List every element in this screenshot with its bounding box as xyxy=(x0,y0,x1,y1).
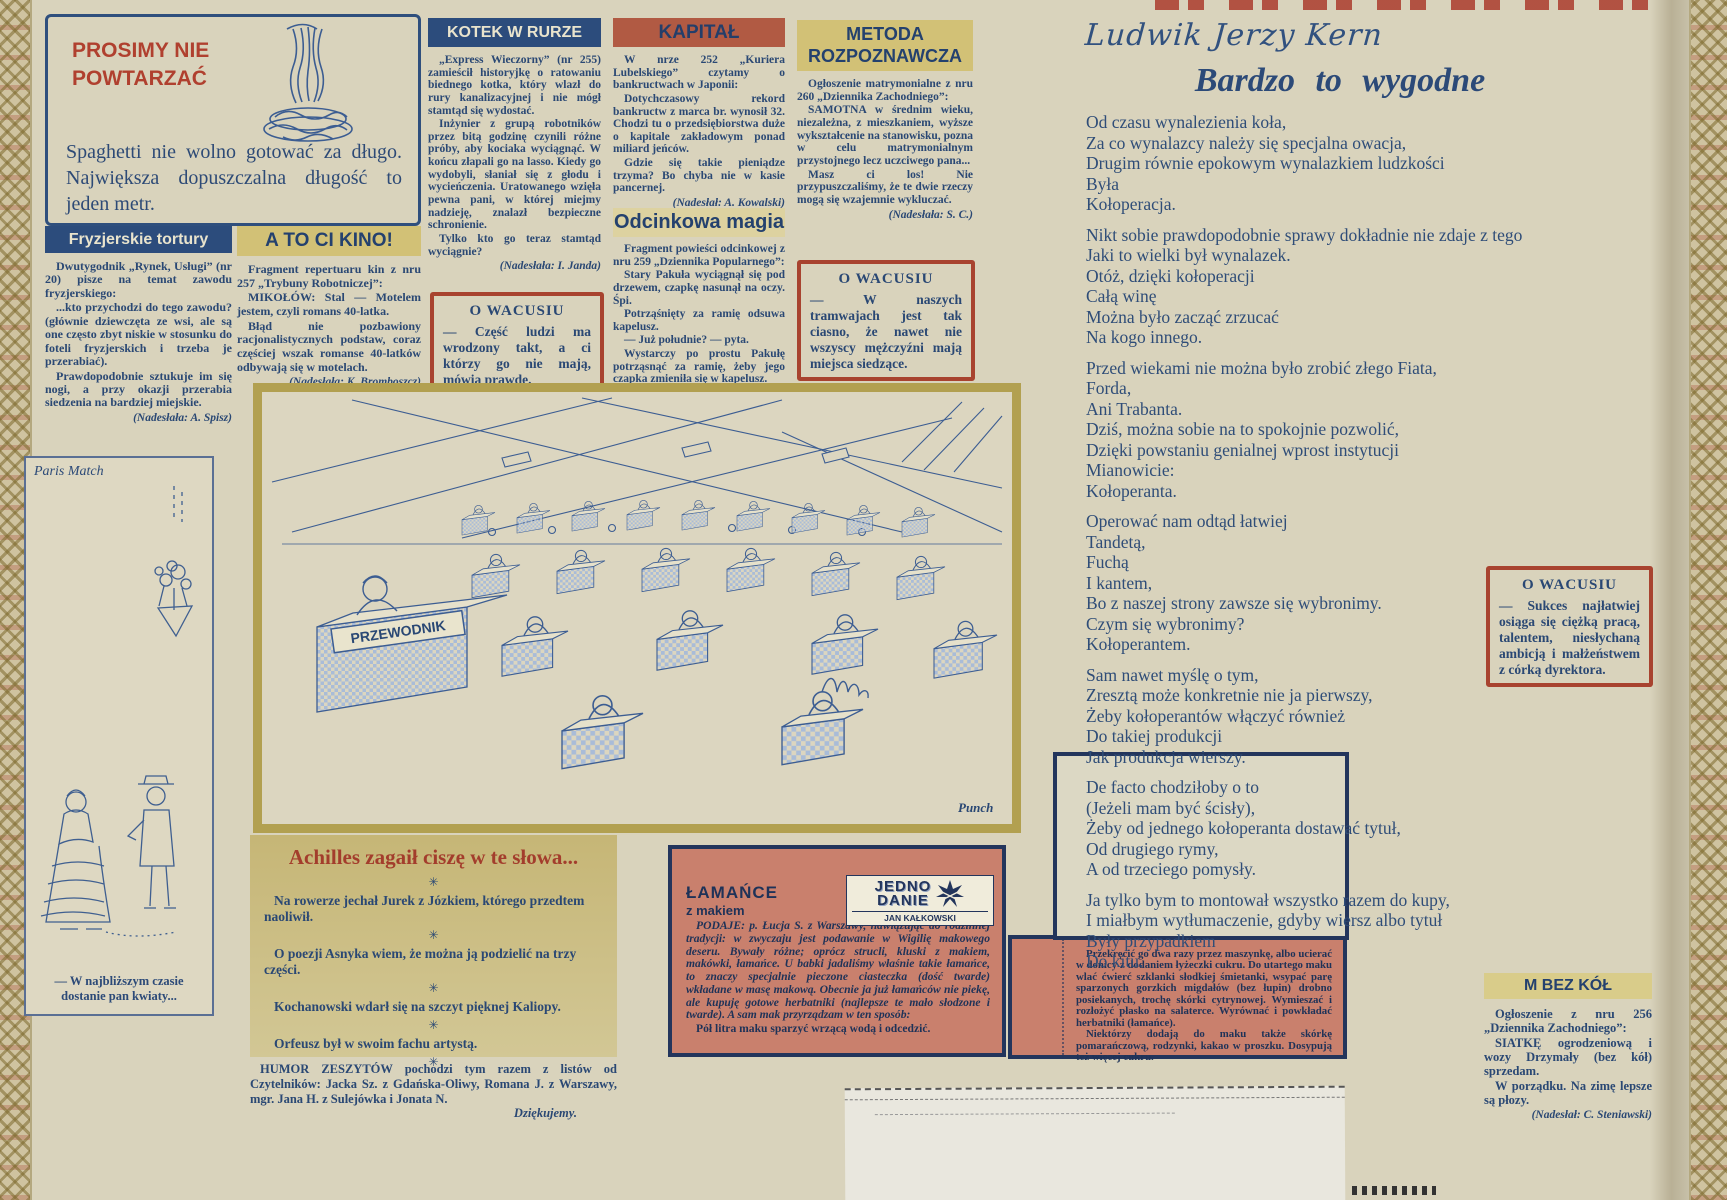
poem-stanza: Przed wiekami nie można było zrobić złeg… xyxy=(1086,358,1646,502)
jedno-danie-logo: JEDNO DANIE JAN KAŁKOWSKI xyxy=(846,875,994,926)
poem-stanza: Operować nam odtąd łatwiej Tandetą, Fuch… xyxy=(1086,511,1646,655)
wacus-box-2: O WACUSIU — W naszych tramwajach jest ta… xyxy=(797,260,975,381)
wacus-body: — Część ludzi ma wrodzony takt, a ci któ… xyxy=(443,324,591,388)
paragraph: Inżynier z grupą robotników przez bitą g… xyxy=(428,118,601,232)
article-body: Ogłoszenie matrymonialne z nru 260 „Dzie… xyxy=(797,78,973,221)
lamance-recipe-box: JEDNO DANIE JAN KAŁKOWSKI ŁAMAŃCE z maki… xyxy=(668,845,1006,1057)
congress-cartoon-panel: PRZEWODNIK xyxy=(253,383,1021,833)
paragraph: Fragment repertuaru kin z nru 257 „Trybu… xyxy=(237,263,421,290)
column-divider xyxy=(1062,939,1064,1055)
falling-flowers-cartoon xyxy=(26,484,208,954)
section-header: Fryzjerskie tortury xyxy=(45,226,232,253)
poem-stanza: Ja tylko bym to montował wszystko razem … xyxy=(1086,890,1646,972)
credit-line: (Nadesłał: C. Steniawski) xyxy=(1484,1109,1652,1122)
poem-body: Od czasu wynalezienia koła, Za co wynala… xyxy=(1086,112,1646,982)
article-body: Ogłoszenie z nru 256 „Dziennika Zachodni… xyxy=(1484,1007,1652,1122)
poem-title: Bardzo to wygodne xyxy=(1100,62,1580,100)
paragraph: Stary Pakuła wyciągnął się pod drzewem, … xyxy=(613,269,785,307)
paragraph: Ogłoszenie z nru 256 „Dziennika Zachodni… xyxy=(1484,1007,1652,1035)
paragraph: Wystarczy po prostu Pakułę potrząsnąć za… xyxy=(613,348,785,386)
newspaper-page: PROSIMY NIE POWTARZAĆ Spaghetti nie woln… xyxy=(0,0,1727,1200)
article-body: „Express Wieczorny” (nr 255) zamieścił h… xyxy=(428,54,601,273)
humor-footer: HUMOR ZESZYTÓW pochodzi tym razem z list… xyxy=(250,1062,617,1121)
cartoon-credit: Punch xyxy=(958,800,993,816)
cutoff-masthead-fragment xyxy=(1155,0,1655,10)
asterisk-divider-icon: ✳ xyxy=(264,1018,603,1033)
page-fold-shadow xyxy=(1650,0,1689,1200)
poem-author: Ludwik Jerzy Kern xyxy=(1084,18,1384,53)
asterisk-divider-icon: ✳ xyxy=(264,981,603,996)
wacus-body: — W naszych tramwajach jest tak ciasno, … xyxy=(810,292,962,372)
paragraph: W porządku. Na zimę lepsze są płozy. xyxy=(1484,1079,1652,1107)
recipe-step: Pół litra maku sparzyć wrzącą wodą i odc… xyxy=(686,1023,990,1036)
paragraph: Dwutygodnik „Rynek, Usługi” (nr 20) pisz… xyxy=(45,260,232,300)
logo-burst-icon xyxy=(935,879,965,909)
wacus-box-1: O WACUSIU — Część ludzi ma wrodzony takt… xyxy=(430,292,604,397)
credit-line: (Nadesłała: A. Spisz) xyxy=(45,412,232,425)
paragraph: Masz ci los! Nie przypuszczaliśmy, że te… xyxy=(797,169,973,207)
paragraph: ...kto przychodzi do tego zawodu? (główn… xyxy=(45,301,232,368)
article-body: Fragment powieści odcinkowej z nru 259 „… xyxy=(613,243,785,401)
logo-line2: DANIE xyxy=(875,894,932,908)
section-header: KOTEK W RURZE xyxy=(428,18,601,47)
credit-line: (Nadesłała: I. Janda) xyxy=(428,260,601,273)
poem-stanza: Sam nawet myślę o tym, Zresztą może konk… xyxy=(1086,665,1646,768)
poem-stanza: Nikt sobie prawdopodobnie sprawy dokładn… xyxy=(1086,225,1646,348)
section-header: M BEZ KÓŁ xyxy=(1484,973,1652,999)
paragraph: Dotychczasowy rekord bankructw z marca b… xyxy=(613,93,785,156)
registration-marks xyxy=(1352,1186,1436,1195)
credit-line: (Nadesłała: S. C.) xyxy=(797,209,973,222)
notice-body: Spaghetti nie wolno gotować za długo. Na… xyxy=(66,139,402,217)
adjacent-page-fragment xyxy=(845,1086,1346,1200)
paragraph: Prawdopodobnie sztukuje im się nogi, a p… xyxy=(45,370,232,410)
section-header: KAPITAŁ xyxy=(613,18,785,47)
joke-item: Na rowerze jechał Jurek z Józkiem, które… xyxy=(264,893,603,925)
paragraph: Tylko kto go teraz stamtąd wyciągnie? xyxy=(428,233,601,258)
spaghetti-illustration xyxy=(253,23,363,148)
joke-item: Kochanowski wdarł się na szczyt pięknej … xyxy=(264,999,603,1015)
section-header: Odcinkowa magia xyxy=(613,208,785,237)
section-kapital: KAPITAŁ W nrze 252 „Kuriera Lubelskiego”… xyxy=(613,18,785,210)
poem-stanza: De facto chodziłoby o to (Jeżeli mam być… xyxy=(1086,777,1646,880)
paragraph: — Już południe? — pyta. xyxy=(613,334,785,347)
joke-item: Orfeusz był w swoim fachu artystą. xyxy=(264,1036,603,1052)
paragraph: Niektórzy dodają do maku także skórkę po… xyxy=(1076,1029,1332,1063)
paragraph: MIKOŁÓW: Stal — Motelem jestem, czyli ro… xyxy=(237,291,421,318)
paragraph: Fragment powieści odcinkowej z nru 259 „… xyxy=(613,243,785,268)
asterisk-divider-icon: ✳ xyxy=(264,928,603,943)
paris-match-cartoon: Paris Match xyxy=(24,456,214,1016)
cartoon-source-label: Paris Match xyxy=(34,464,104,480)
wacus-title: O WACUSIU xyxy=(810,271,962,288)
asterisk-divider-icon: ✳ xyxy=(264,875,603,890)
congress-hall-drawing: PRZEWODNIK xyxy=(262,392,1012,824)
article-body: Fragment repertuaru kin z nru 257 „Trybu… xyxy=(237,263,421,389)
paragraph: Ogłoszenie matrymonialne z nru 260 „Dzie… xyxy=(797,78,973,103)
section-odcinkowa: Odcinkowa magia Fragment powieści odcink… xyxy=(613,208,785,401)
paragraph: SAMOTNA w średnim wieku, niezależna, z m… xyxy=(797,104,973,167)
section-header: A TO CI KINO! xyxy=(237,226,421,256)
section-metoda: METODA ROZPOZNAWCZA Ogłoszenie matrymoni… xyxy=(797,20,973,221)
section-kotek: KOTEK W RURZE „Express Wieczorny” (nr 25… xyxy=(428,18,601,273)
paragraph: Błąd nie pozbawiony racjonalistycznych p… xyxy=(237,320,421,375)
logo-byline: JAN KAŁKOWSKI xyxy=(852,911,988,923)
section-atocikino: A TO CI KINO! Fragment repertuaru kin z … xyxy=(237,226,421,389)
paragraph: SIATKĘ ogrodzeniową i wozy Drzymały (bez… xyxy=(1484,1036,1652,1078)
section-fryzjerskie: Fryzjerskie tortury Dwutygodnik „Rynek, … xyxy=(45,226,232,425)
achilles-panel: Achilles zagaił ciszę w te słowa... ✳ Na… xyxy=(250,835,617,1057)
footer-signature: Dziękujemy. xyxy=(250,1106,617,1121)
article-body: Dwutygodnik „Rynek, Usługi” (nr 20) pisz… xyxy=(45,260,232,425)
poem-stanza: Od czasu wynalezienia koła, Za co wynala… xyxy=(1086,112,1646,215)
section-header: METODA ROZPOZNAWCZA xyxy=(797,20,973,71)
joke-item: O poezji Asnyka wiem, że można ją podzie… xyxy=(264,946,603,978)
wacus-title: O WACUSIU xyxy=(443,303,591,320)
cartoon-caption: — W najbliższym czasie dostanie pan kwia… xyxy=(33,974,205,1004)
footer-text: HUMOR ZESZYTÓW pochodzi tym razem z list… xyxy=(250,1062,617,1106)
notice-title: PROSIMY NIE POWTARZAĆ xyxy=(72,37,209,94)
paragraph: W nrze 252 „Kuriera Lubelskiego” czytamy… xyxy=(613,54,785,92)
achilles-title: Achilles zagaił ciszę w te słowa... xyxy=(250,835,617,870)
paragraph: „Express Wieczorny” (nr 255) zamieścił h… xyxy=(428,54,601,117)
notice-box-spaghetti: PROSIMY NIE POWTARZAĆ Spaghetti nie woln… xyxy=(45,14,421,226)
article-body: W nrze 252 „Kuriera Lubelskiego” czytamy… xyxy=(613,54,785,210)
right-ornament-border xyxy=(1689,0,1727,1200)
paragraph: Potrząśnięty za ramię odsuwa kapelusz. xyxy=(613,308,785,333)
recipe-intro: PODAJE: p. Łucja S. z Warszawy, nawiązuj… xyxy=(686,920,990,1022)
section-mbezkol: M BEZ KÓŁ Ogłoszenie z nru 256 „Dziennik… xyxy=(1484,973,1652,1122)
paragraph: Gdzie się takie pieniądze trzyma? Bo chy… xyxy=(613,157,785,195)
